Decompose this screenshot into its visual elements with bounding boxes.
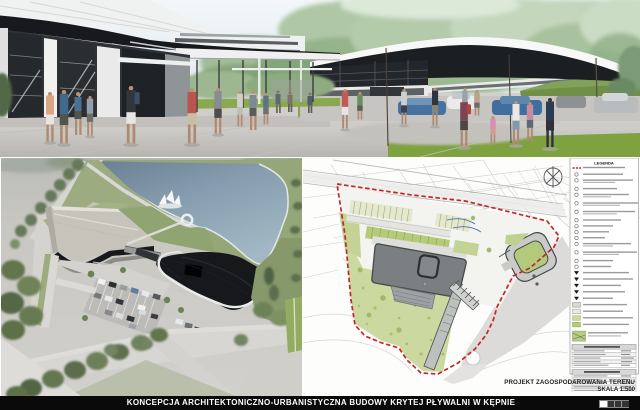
svg-text:LEGENDA: LEGENDA [594, 161, 614, 166]
